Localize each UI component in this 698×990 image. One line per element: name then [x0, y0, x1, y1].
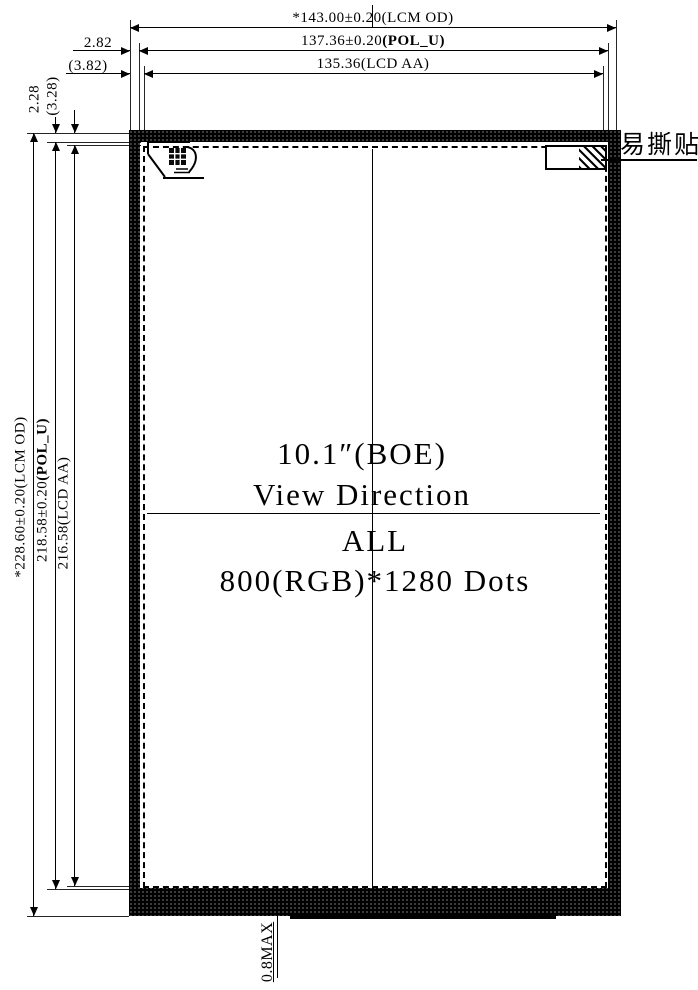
dimension-arrow	[52, 124, 60, 133]
dim-ref: (LCM OD)	[382, 10, 454, 26]
spec-view-direction-line: View Direction	[116, 479, 608, 510]
dim-ref: (LCD AA)	[56, 457, 72, 526]
spec-resolution-line: 800(RGB)*1280 Dots	[129, 565, 621, 596]
dim-label-pol-width: 137.36±0.20(POL_U)	[129, 34, 617, 49]
dim-label-aa-width: 135.36(LCD AA)	[129, 57, 617, 72]
dim-label-lcm-width: *143.00±0.20(LCM OD)	[129, 11, 617, 26]
dimension-arrow	[30, 907, 38, 916]
dim-label-pol-height: 218.58±0.20(POL_U)	[36, 418, 51, 562]
dim-label-aa-height: 216.58(LCD AA)	[57, 457, 72, 570]
dimension-line	[74, 145, 75, 886]
extension-line	[67, 886, 129, 887]
dim-value: 137.36±0.20	[301, 33, 382, 49]
dim-label-bottom-thickness: 0.8MAX	[260, 922, 276, 982]
bottom-protrusion-strip	[290, 915, 556, 919]
dim-ref: (LCD AA)	[361, 56, 430, 72]
dim-value: *143.00±0.20	[292, 10, 381, 26]
easy-tear-label: 易撕贴	[620, 133, 698, 158]
dim-label-top-offset-pol: 2.28	[28, 85, 43, 113]
dimension-line	[144, 73, 603, 74]
dim-value: 216.58	[56, 525, 72, 569]
dimension-arrow	[71, 145, 79, 154]
dim-label-side-offset-aa: (3.82)	[56, 59, 120, 74]
dim-label-top-offset-aa: (3.28)	[46, 76, 61, 115]
dim-value: 218.58±0.20	[35, 481, 51, 562]
bottom-thickness-leader	[277, 916, 278, 978]
dim-ref: (LCM OD)	[13, 416, 29, 488]
dim-value: 135.36	[317, 56, 361, 72]
dimension-line	[130, 27, 616, 28]
extension-line	[27, 133, 129, 134]
dim-label-side-offset-pol: 2.82	[66, 36, 130, 51]
dim-value: *228.60±0.20	[13, 488, 29, 577]
spec-size-line: 10.1″(BOE)	[116, 438, 608, 469]
dimension-arrow	[71, 877, 79, 886]
dim-ref: (POL_U)	[35, 418, 51, 481]
centerline-horizontal	[147, 513, 600, 514]
easy-tear-leader-line	[601, 159, 697, 161]
dimension-arrow	[52, 142, 60, 151]
dimension-arrow	[52, 880, 60, 889]
dimension-arrow	[71, 124, 79, 133]
aa-dashed-outline	[143, 146, 607, 888]
dimension-arrow	[30, 133, 38, 142]
spec-all-line: ALL	[129, 525, 621, 556]
extension-line	[47, 889, 129, 890]
extension-line	[603, 66, 604, 130]
peel-tab-icon	[144, 139, 208, 183]
dimension-line	[139, 50, 608, 51]
sticker-hatch	[579, 147, 605, 168]
easy-tear-sticker	[545, 145, 607, 170]
extension-line	[27, 916, 129, 917]
dim-ref: (POL_U)	[382, 33, 445, 49]
centerline-vertical	[372, 149, 373, 888]
extension-line	[47, 142, 141, 143]
dim-label-lcm-height: *228.60±0.20(LCM OD)	[14, 416, 29, 577]
drawing-canvas: 易撕贴 0.8MAX *143.00±0.20(LCM OD) 137.36±0…	[0, 0, 698, 990]
